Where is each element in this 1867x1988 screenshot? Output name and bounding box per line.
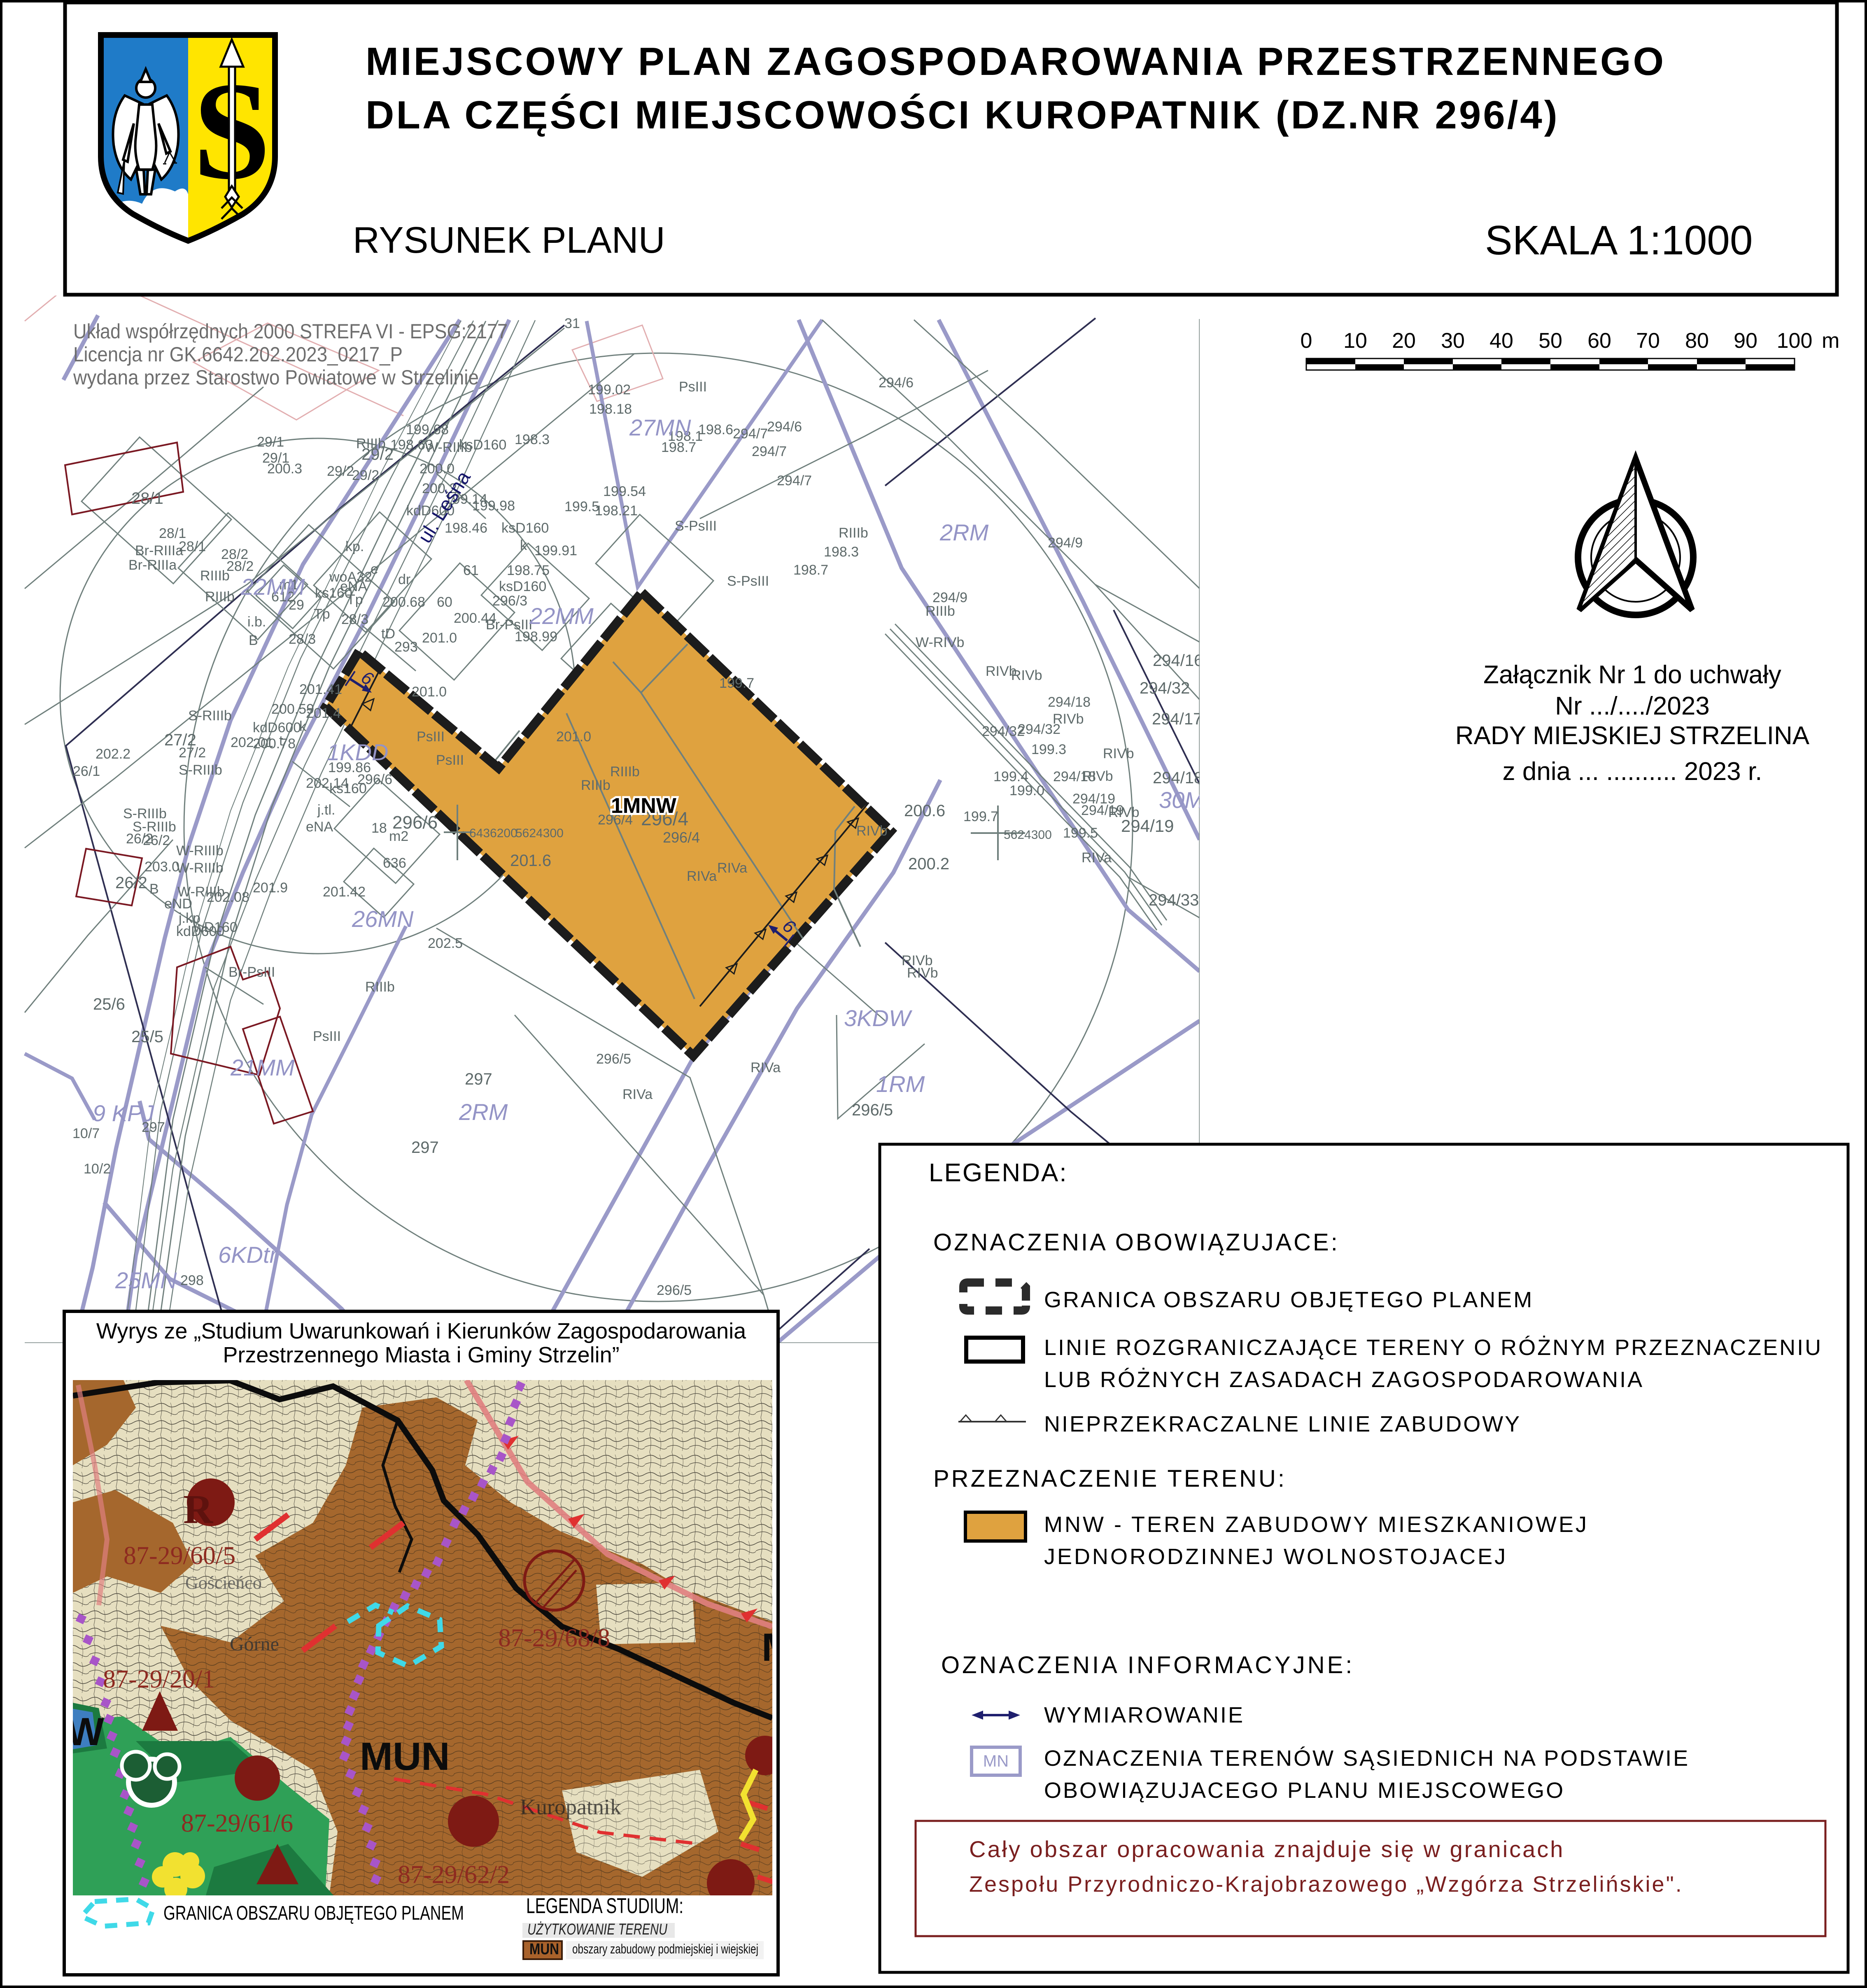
svg-text:200.68: 200.68 xyxy=(382,594,425,610)
svg-text:70: 70 xyxy=(1636,329,1660,353)
svg-text:B: B xyxy=(149,881,159,897)
svg-text:60: 60 xyxy=(1587,329,1611,353)
svg-text:RIIIb: RIIIb xyxy=(581,778,611,793)
svg-text:PsIII: PsIII xyxy=(679,379,707,395)
svg-text:100: 100 xyxy=(1777,329,1813,353)
svg-text:k: k xyxy=(299,719,307,734)
svg-text:Zespołu Przyrodniczo-Krajobraz: Zespołu Przyrodniczo-Krajobrazowego „Wzg… xyxy=(969,1872,1683,1897)
svg-text:WYMIAROWANIE: WYMIAROWANIE xyxy=(1044,1703,1245,1727)
svg-text:wD160: wD160 xyxy=(193,920,238,935)
svg-text:GRANICA OBSZARU OBJĘTEGO PLANE: GRANICA OBSZARU OBJĘTEGO PLANEM xyxy=(163,1902,464,1924)
svg-text:Cały obszar opracowania znajdu: Cały obszar opracowania znajduje się w g… xyxy=(969,1836,1564,1862)
svg-text:294/9: 294/9 xyxy=(1048,535,1083,551)
svg-text:S-PsIII: S-PsIII xyxy=(675,518,717,534)
svg-text:26/2: 26/2 xyxy=(143,833,170,848)
svg-text:200.2: 200.2 xyxy=(908,855,949,873)
svg-text:Br-RIIIa: Br-RIIIa xyxy=(128,557,177,573)
svg-text:298: 298 xyxy=(180,1273,204,1288)
svg-text:RIIIb: RIIIb xyxy=(925,603,955,619)
svg-text:201.41: 201.41 xyxy=(299,682,342,697)
svg-text:87-29/61/6: 87-29/61/6 xyxy=(181,1809,293,1837)
svg-text:198.7: 198.7 xyxy=(661,440,696,455)
svg-text:198.99: 198.99 xyxy=(515,629,557,645)
svg-text:Br-PsIII: Br-PsIII xyxy=(228,964,275,980)
svg-text:RIVa: RIVa xyxy=(751,1060,781,1075)
svg-text:RIIIb: RIIIb xyxy=(839,525,868,541)
svg-text:dr: dr xyxy=(398,572,410,587)
svg-text:S-PsIII: S-PsIII xyxy=(727,573,769,589)
svg-text:GRANICA OBSZARU OBJĘTEGO PLANE: GRANICA OBSZARU OBJĘTEGO PLANEM xyxy=(1044,1287,1534,1312)
svg-text:200.6: 200.6 xyxy=(904,802,945,820)
svg-text:26/1: 26/1 xyxy=(73,764,100,779)
svg-text:2RM: 2RM xyxy=(939,519,989,545)
svg-text:NIEPRZEKRACZALNE LINIE ZABUDOW: NIEPRZEKRACZALNE LINIE ZABUDOWY xyxy=(1044,1412,1521,1436)
svg-text:2RM: 2RM xyxy=(459,1099,508,1125)
svg-text:199.4: 199.4 xyxy=(993,769,1028,784)
svg-text:z dnia ... .......... 2023 r.: z dnia ... .......... 2023 r. xyxy=(1503,757,1762,786)
svg-text:Układ współrzędnych 2000 STREF: Układ współrzędnych 2000 STREFA VI - EPS… xyxy=(73,320,508,343)
svg-text:W-RIVb: W-RIVb xyxy=(916,635,964,650)
svg-text:PRZEZNACZENIE TERENU:: PRZEZNACZENIE TERENU: xyxy=(933,1465,1287,1492)
svg-text:294/7: 294/7 xyxy=(733,426,768,442)
svg-text:29/2: 29/2 xyxy=(327,463,354,479)
svg-text:199.91: 199.91 xyxy=(534,543,577,559)
svg-text:m2: m2 xyxy=(389,829,408,844)
svg-text:S-RIIIb: S-RIIIb xyxy=(188,708,232,724)
svg-text:199.7: 199.7 xyxy=(963,809,998,824)
svg-text:Tp: Tp xyxy=(347,592,363,608)
svg-text:RIVb: RIVb xyxy=(907,965,938,981)
svg-text:25/6: 25/6 xyxy=(93,995,125,1013)
svg-text:RIVa: RIVa xyxy=(687,868,717,884)
svg-text:20: 20 xyxy=(1392,329,1416,353)
svg-text:RIVb: RIVb xyxy=(1082,768,1113,784)
svg-text:28/1: 28/1 xyxy=(131,489,163,507)
svg-text:OZNACZENIA OBOWIĄZUJACE:: OZNACZENIA OBOWIĄZUJACE: xyxy=(933,1229,1340,1256)
svg-text:294/16: 294/16 xyxy=(1153,652,1203,670)
svg-text:B: B xyxy=(249,633,258,648)
svg-text:S-RIIIb: S-RIIIb xyxy=(179,762,222,778)
svg-text:198.6: 198.6 xyxy=(698,422,733,438)
svg-text:296/5: 296/5 xyxy=(657,1283,692,1298)
svg-text:200.3: 200.3 xyxy=(267,461,302,477)
svg-text:199.68: 199.68 xyxy=(406,422,449,438)
svg-text:29/2: 29/2 xyxy=(352,468,379,483)
svg-text:296/3: 296/3 xyxy=(492,593,527,609)
svg-text:18: 18 xyxy=(371,820,387,836)
svg-text:80: 80 xyxy=(1685,329,1709,353)
svg-text:203.0: 203.0 xyxy=(145,859,179,875)
svg-text:201.0: 201.0 xyxy=(422,630,457,646)
svg-text:RIVb: RIVb xyxy=(856,823,888,839)
svg-text:294/17: 294/17 xyxy=(1152,710,1202,728)
svg-text:294/32: 294/32 xyxy=(1140,679,1190,697)
svg-text:Br-RIIIa: Br-RIIIa xyxy=(135,543,183,559)
svg-text:201.0: 201.0 xyxy=(556,729,591,745)
svg-text:294/7: 294/7 xyxy=(777,473,812,489)
svg-text:RADY MIEJSKIEJ STRZELINA: RADY MIEJSKIEJ STRZELINA xyxy=(1455,722,1810,750)
svg-text:W-RIIIb: W-RIIIb xyxy=(176,860,224,876)
svg-text:MN: MN xyxy=(983,1752,1009,1770)
svg-text:6KDtr: 6KDtr xyxy=(218,1242,278,1268)
svg-text:RIIIb: RIIIb xyxy=(365,979,395,995)
svg-text:kp.: kp. xyxy=(345,539,364,554)
svg-text:30: 30 xyxy=(1441,329,1465,353)
svg-text:R: R xyxy=(183,1486,214,1532)
svg-text:87-29/20/1: 87-29/20/1 xyxy=(103,1665,215,1693)
svg-text:294/32: 294/32 xyxy=(1018,722,1061,737)
svg-text:201.42: 201.42 xyxy=(323,884,366,900)
svg-text:5624300: 5624300 xyxy=(1004,828,1052,842)
svg-text:40: 40 xyxy=(1489,329,1513,353)
svg-text:636: 636 xyxy=(383,855,406,871)
svg-text:LUB RÓŻNYCH ZASADACH ZAGOSPODA: LUB RÓŻNYCH ZASADACH ZAGOSPODAROWANIA xyxy=(1044,1367,1644,1392)
svg-text:ksD160: ksD160 xyxy=(459,437,506,453)
svg-text:5624300: 5624300 xyxy=(515,826,564,840)
svg-text:297: 297 xyxy=(465,1070,492,1088)
svg-text:m: m xyxy=(1822,329,1839,353)
svg-text:199.02: 199.02 xyxy=(588,382,631,398)
svg-text:ksD160: ksD160 xyxy=(499,579,546,594)
svg-text:27/2: 27/2 xyxy=(179,745,206,761)
svg-text:294/19: 294/19 xyxy=(1121,816,1174,836)
svg-text:31: 31 xyxy=(564,316,580,331)
svg-text:Tp: Tp xyxy=(314,606,330,622)
svg-text:eNA: eNA xyxy=(306,819,333,835)
svg-text:198.3: 198.3 xyxy=(824,544,859,560)
svg-text:201.9: 201.9 xyxy=(253,880,288,896)
svg-text:6436200: 6436200 xyxy=(469,826,517,840)
svg-text:Licencja nr GK.6642.202.2023_0: Licencja nr GK.6642.202.2023_0217_P xyxy=(73,343,403,366)
svg-text:198.7: 198.7 xyxy=(793,562,828,578)
svg-text:kdD600: kdD600 xyxy=(253,720,301,736)
svg-text:10/7: 10/7 xyxy=(72,1126,100,1141)
svg-text:87-29/62/2: 87-29/62/2 xyxy=(398,1861,510,1889)
svg-text:198.3: 198.3 xyxy=(515,432,550,447)
svg-text:25/5: 25/5 xyxy=(131,1028,163,1046)
svg-text:198.46: 198.46 xyxy=(445,520,487,536)
svg-text:200.0: 200.0 xyxy=(420,461,455,477)
svg-text:294/18: 294/18 xyxy=(1048,694,1091,710)
svg-text:MUN: MUN xyxy=(360,1734,450,1778)
svg-text:3KDW: 3KDW xyxy=(844,1005,913,1031)
svg-text:eND: eND xyxy=(164,896,192,912)
svg-text:61: 61 xyxy=(463,563,479,578)
svg-text:obszary zabudowy podmiejskiej: obszary zabudowy podmiejskiej i wiejskie… xyxy=(572,1941,758,1956)
svg-text:i.b.: i.b. xyxy=(247,614,266,630)
svg-text:UŻYTKOWANIE TERENU: UŻYTKOWANIE TERENU xyxy=(527,1921,667,1938)
svg-text:RYSUNEK PLANU: RYSUNEK PLANU xyxy=(353,220,665,261)
svg-text:28/3: 28/3 xyxy=(341,612,368,627)
svg-text:202.5: 202.5 xyxy=(428,936,463,951)
svg-text:MIEJSCOWY PLAN ZAGOSPODAROWANI: MIEJSCOWY PLAN ZAGOSPODAROWANIA PRZESTRZ… xyxy=(366,40,1666,84)
svg-text:Kuropatnik: Kuropatnik xyxy=(520,1795,621,1819)
svg-text:0: 0 xyxy=(1301,329,1312,353)
svg-text:9 KPJ: 9 KPJ xyxy=(93,1100,154,1126)
svg-text:199.7: 199.7 xyxy=(719,675,754,691)
svg-text:201.4: 201.4 xyxy=(306,705,341,721)
svg-text:90: 90 xyxy=(1734,329,1757,353)
svg-text:202.08: 202.08 xyxy=(207,889,249,905)
svg-text:60: 60 xyxy=(437,594,452,610)
svg-text:OZNACZENIA INFORMACYJNE:: OZNACZENIA INFORMACYJNE: xyxy=(941,1652,1354,1678)
svg-text:PsIII: PsIII xyxy=(313,1029,341,1044)
svg-text:RIIIb: RIIIb xyxy=(205,589,235,605)
svg-text:50: 50 xyxy=(1538,329,1562,353)
svg-text:1MNW: 1MNW xyxy=(611,794,677,818)
svg-text:LEGENDA:: LEGENDA: xyxy=(929,1159,1068,1187)
svg-text:296/5: 296/5 xyxy=(852,1101,893,1119)
svg-text:SKALA 1:1000: SKALA 1:1000 xyxy=(1485,217,1753,263)
svg-text:26/2: 26/2 xyxy=(115,874,147,892)
svg-text:RIVb: RIVb xyxy=(1011,668,1042,683)
svg-text:k: k xyxy=(520,538,527,553)
svg-text:DLA CZĘŚCI MIEJSCOWOŚCI KUROPA: DLA CZĘŚCI MIEJSCOWOŚCI KUROPATNIK (DZ.N… xyxy=(366,93,1559,137)
svg-text:200.78: 200.78 xyxy=(253,736,296,752)
svg-text:LEGENDA STUDIUM:: LEGENDA STUDIUM: xyxy=(526,1894,683,1918)
svg-text:wydana przez Starostwo Powiato: wydana przez Starostwo Powiatowe w Strze… xyxy=(73,366,479,389)
svg-text:293: 293 xyxy=(394,639,418,655)
svg-text:198.18: 198.18 xyxy=(589,401,632,417)
svg-text:294/6: 294/6 xyxy=(767,419,802,435)
svg-text:PsIII: PsIII xyxy=(417,729,445,745)
svg-text:87-29/68/8: 87-29/68/8 xyxy=(498,1624,610,1652)
svg-text:Załącznik Nr 1 do uchwały: Załącznik Nr 1 do uchwały xyxy=(1483,661,1781,689)
svg-text:29/1: 29/1 xyxy=(257,434,284,450)
svg-text:28/2: 28/2 xyxy=(226,559,254,574)
svg-text:Górne: Górne xyxy=(230,1633,279,1655)
svg-text:tD: tD xyxy=(381,626,395,642)
svg-text:22MM: 22MM xyxy=(529,603,594,629)
svg-text:ksD160: ksD160 xyxy=(501,520,549,536)
svg-text:199.5: 199.5 xyxy=(564,499,599,514)
svg-text:j.tl.: j.tl. xyxy=(317,802,335,818)
svg-text:296/4: 296/4 xyxy=(663,829,700,846)
svg-text:RIVa: RIVa xyxy=(622,1087,653,1102)
svg-text:201.0: 201.0 xyxy=(412,684,447,700)
svg-text:Wyrys ze „Studium Uwarunkowań: Wyrys ze „Studium Uwarunkowań i Kierunkó… xyxy=(96,1319,746,1343)
svg-text:199.3: 199.3 xyxy=(1031,742,1066,757)
svg-text:RIIIb: RIIIb xyxy=(356,436,386,452)
svg-text:294/6: 294/6 xyxy=(879,375,914,391)
svg-text:10/2: 10/2 xyxy=(84,1161,111,1177)
svg-text:RIIIb: RIIIb xyxy=(200,568,230,584)
svg-text:e: e xyxy=(371,561,378,577)
svg-text:201.6: 201.6 xyxy=(510,852,551,870)
svg-text:297: 297 xyxy=(411,1138,439,1157)
svg-text:21MM: 21MM xyxy=(230,1055,295,1080)
svg-text:Gościeńco: Gościeńco xyxy=(185,1573,262,1593)
svg-text:199.5: 199.5 xyxy=(1063,825,1098,841)
svg-text:LINIE ROZGRANICZAJĄCE TERENY O: LINIE ROZGRANICZAJĄCE TERENY O RÓŻNYM PR… xyxy=(1044,1335,1823,1360)
svg-text:OZNACZENIA TERENÓW SĄSIEDNICH: OZNACZENIA TERENÓW SĄSIEDNICH NA PODSTAW… xyxy=(1044,1746,1690,1771)
svg-text:28/3: 28/3 xyxy=(289,631,316,647)
svg-text:10: 10 xyxy=(1343,329,1367,353)
svg-text:JEDNORODZINNEJ WOLNOSTOJACEJ: JEDNORODZINNEJ WOLNOSTOJACEJ xyxy=(1044,1544,1508,1569)
svg-text:202.2: 202.2 xyxy=(96,746,131,762)
svg-text:26MN: 26MN xyxy=(352,906,414,932)
svg-text:87-29/60/5: 87-29/60/5 xyxy=(124,1542,235,1570)
svg-text:294/7: 294/7 xyxy=(752,444,787,459)
svg-text:RIVa: RIVa xyxy=(1082,850,1112,866)
svg-text:296/5: 296/5 xyxy=(596,1051,631,1067)
svg-text:Przestrzennego Miasta i Gminy: Przestrzennego Miasta i Gminy Strzelin” xyxy=(223,1343,619,1367)
svg-text:27MN: 27MN xyxy=(629,414,691,440)
svg-text:RIIIb: RIIIb xyxy=(610,764,640,780)
svg-text:1RM: 1RM xyxy=(876,1071,925,1097)
svg-text:199.98: 199.98 xyxy=(472,498,515,514)
svg-text:MUN: MUN xyxy=(529,1941,559,1958)
svg-text:OBOWIĄZUJACEGO PLANU MIEJSCOWE: OBOWIĄZUJACEGO PLANU MIEJSCOWEGO xyxy=(1044,1778,1565,1803)
svg-text:199.54: 199.54 xyxy=(603,484,646,499)
svg-text:22MM: 22MM xyxy=(240,574,305,600)
svg-text:199.0: 199.0 xyxy=(1009,783,1044,798)
svg-text:294/18: 294/18 xyxy=(1153,769,1203,787)
svg-text:RIVb: RIVb xyxy=(1103,746,1134,761)
svg-text:294/33: 294/33 xyxy=(1149,891,1199,909)
svg-text:198.75: 198.75 xyxy=(507,563,550,578)
svg-text:RIVa: RIVa xyxy=(717,860,747,876)
svg-text:1KDD: 1KDD xyxy=(327,739,388,765)
svg-text:296/6: 296/6 xyxy=(357,772,392,787)
svg-text:W-RIIIb: W-RIIIb xyxy=(176,843,224,859)
svg-text:198.21: 198.21 xyxy=(595,503,638,519)
svg-text:PsIII: PsIII xyxy=(436,752,464,768)
svg-text:MNW - TEREN ZABUDOWY MIESZKANI: MNW - TEREN ZABUDOWY MIESZKANIOWEJ xyxy=(1044,1512,1589,1537)
svg-text:25MN: 25MN xyxy=(115,1267,177,1293)
svg-text:Nr .../..../2023: Nr .../..../2023 xyxy=(1555,692,1710,720)
